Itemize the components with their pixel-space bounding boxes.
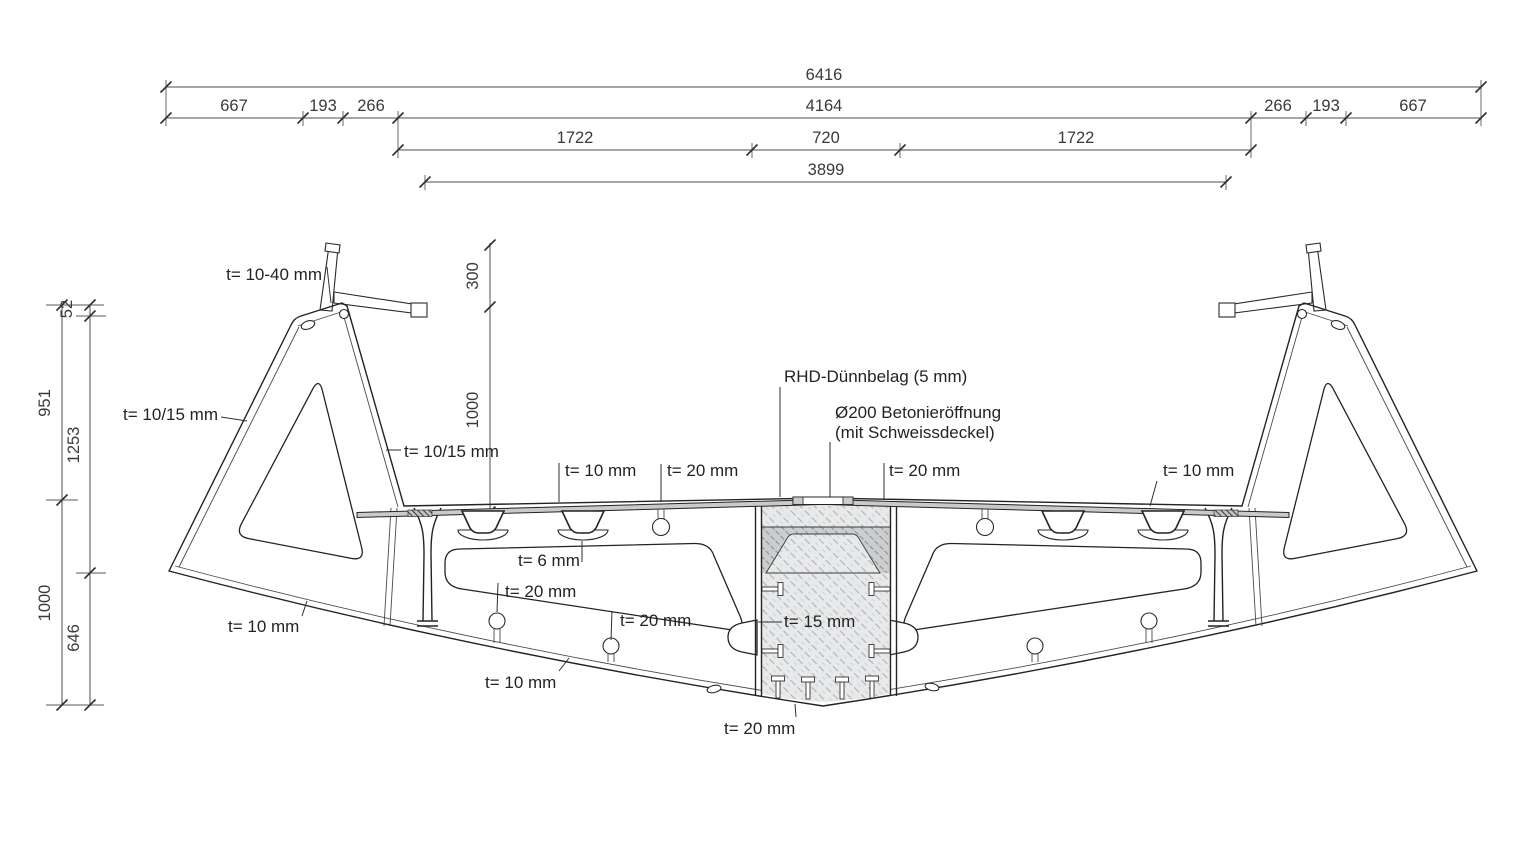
dim-1722-right: 1722 xyxy=(1058,129,1095,147)
dim-720: 720 xyxy=(812,129,840,147)
trough xyxy=(558,511,608,540)
core-web-right xyxy=(891,505,897,696)
structure xyxy=(169,243,1477,706)
dim-646: 646 xyxy=(65,624,83,652)
label-deck-thickness-center-right: t= 20 mm xyxy=(889,461,960,480)
drawing-canvas: 6416 667 193 266 4164 266 193 667 1722 7… xyxy=(0,0,1536,855)
dim-4164: 4164 xyxy=(806,97,843,115)
right-wing-web-below-deck xyxy=(1249,508,1262,626)
dim-300: 300 xyxy=(464,262,482,290)
dim-1000-left: 1000 xyxy=(36,585,54,622)
cross-section-drawing: 6416 667 193 266 4164 266 193 667 1722 7… xyxy=(0,0,1536,855)
middle-dimension-line: 300 1000 xyxy=(464,240,496,518)
right-junction-web xyxy=(1205,508,1232,626)
concrete-core xyxy=(762,506,890,702)
dim-193-left: 193 xyxy=(309,97,337,115)
label-deck-thickness-left: t= 10 mm xyxy=(565,461,636,480)
label-wing-bottom-thickness: t= 10 mm xyxy=(228,617,299,636)
top-dimension-block: 6416 667 193 266 4164 266 193 667 1722 7… xyxy=(161,66,1487,190)
drain-hole-right xyxy=(924,682,939,692)
trough xyxy=(1038,511,1088,540)
left-railing-post xyxy=(320,243,427,317)
label-surfacing: RHD-Dünnbelag (5 mm) xyxy=(784,367,967,386)
dim-overall-width: 6416 xyxy=(806,66,843,84)
label-opening-line1: Ø200 Betonieröffnung xyxy=(835,403,1001,422)
left-dimension-block: 951 1000 52 1253 646 xyxy=(36,300,106,711)
dim-1722-left: 1722 xyxy=(557,129,594,147)
label-bottom-plate-center: t= 20 mm xyxy=(724,719,795,738)
label-rib-thickness-left: t= 20 mm xyxy=(667,461,738,480)
dim-52: 52 xyxy=(58,300,76,318)
label-top-plate-thickness: t= 10-40 mm xyxy=(226,265,322,284)
label-bottom-rib-2: t= 20 mm xyxy=(620,611,691,630)
deck-splice-left xyxy=(408,510,432,517)
label-outer-web-thickness: t= 10/15 mm xyxy=(123,405,218,424)
apex-cope-left xyxy=(300,319,316,331)
left-wing-web-below-deck xyxy=(384,508,397,626)
label-bottom-rib-1: t= 20 mm xyxy=(505,582,576,601)
label-opening-line2: (mit Schweissdeckel) xyxy=(835,423,995,442)
right-arm-cap xyxy=(1219,303,1235,317)
drain-hole-left xyxy=(706,684,721,694)
left-junction-web xyxy=(414,508,441,626)
dim-1000-mid: 1000 xyxy=(464,392,482,429)
dim-3899: 3899 xyxy=(808,161,845,179)
deck-splice-right xyxy=(1214,510,1238,517)
dim-266-right: 266 xyxy=(1264,97,1292,115)
dim-1253: 1253 xyxy=(65,427,83,464)
core-web-left xyxy=(756,505,762,696)
left-post-cap xyxy=(325,243,340,253)
label-core-web-thickness: t= 15 mm xyxy=(784,612,855,631)
dim-667-left: 667 xyxy=(220,97,248,115)
apex-hole-left xyxy=(340,310,349,319)
apex-cope-right xyxy=(1330,319,1346,331)
label-deck-thickness-right: t= 10 mm xyxy=(1163,461,1234,480)
dim-951: 951 xyxy=(36,389,54,417)
trough xyxy=(458,511,508,540)
label-inner-web-thickness: t= 10/15 mm xyxy=(404,442,499,461)
apex-hole-right xyxy=(1298,310,1307,319)
dim-266-left: 266 xyxy=(357,97,385,115)
concreting-opening-cover xyxy=(793,497,853,505)
trough xyxy=(1138,511,1188,540)
label-trough-thickness: t= 6 mm xyxy=(518,551,580,570)
right-railing-post xyxy=(1219,243,1326,317)
left-arm-cap xyxy=(411,303,427,317)
dim-193-right: 193 xyxy=(1312,97,1340,115)
right-post-cap xyxy=(1306,243,1321,253)
dim-667-right: 667 xyxy=(1399,97,1427,115)
label-bottom-plate-outer: t= 10 mm xyxy=(485,673,556,692)
